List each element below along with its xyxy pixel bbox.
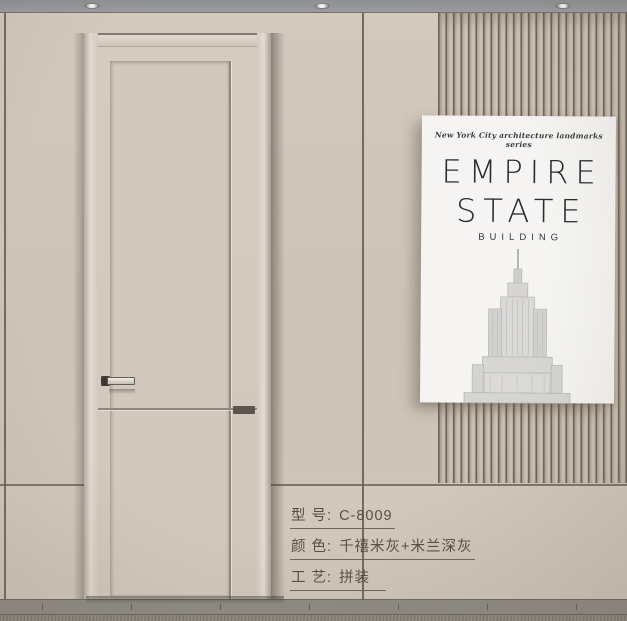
door-frame-jamb-right <box>257 33 271 600</box>
wall-seam-left <box>4 13 6 599</box>
door-frame-jamb-left <box>84 33 98 600</box>
door-frame-shadow-left <box>73 33 84 600</box>
product-spec-block: 型 号:C-8009 颜 色:千禧米灰+米兰深灰 工 艺:拼装 <box>290 504 510 597</box>
spec-row-craft: 工 艺:拼装 <box>290 566 510 591</box>
door-frame-lintel <box>84 33 271 47</box>
poster-title-line1: EMPIRE <box>422 156 616 188</box>
door-recessed-panel <box>110 61 229 596</box>
floor-texture <box>0 604 627 610</box>
spec-value-craft: 拼装 <box>339 570 370 586</box>
door-handle <box>107 377 135 385</box>
spec-value-color: 千禧米灰+米兰深灰 <box>339 539 472 555</box>
recessed-light-icon <box>555 3 571 9</box>
door-floor-shadow <box>86 596 284 604</box>
spec-value-model: C-8009 <box>339 508 393 524</box>
empire-state-building-icon <box>452 247 583 420</box>
empire-state-poster: New York City architecture landmarks ser… <box>420 115 616 403</box>
poster-subtitle: BUILDING <box>421 231 615 243</box>
recessed-light-icon <box>84 3 100 9</box>
door-handle-shadow <box>109 389 135 394</box>
poster-series-text: New York City architecture landmarks ser… <box>422 130 616 149</box>
spec-row-model: 型 号:C-8009 <box>290 504 510 529</box>
carpet-strip <box>0 614 627 621</box>
spec-label-craft: 工 艺: <box>291 570 332 586</box>
poster-title-line2: STATE <box>421 195 615 227</box>
spec-row-color: 颜 色:千禧米灰+米兰深灰 <box>290 535 510 560</box>
door-frame-shadow-right <box>271 33 285 600</box>
door-dark-accent-strip <box>233 406 255 414</box>
recessed-light-icon <box>314 3 330 9</box>
door-leaf <box>98 47 257 600</box>
showroom-scene: New York City architecture landmarks ser… <box>0 0 627 621</box>
door-vertical-groove <box>229 61 231 600</box>
spec-label-model: 型 号: <box>291 508 332 524</box>
spec-label-color: 颜 色: <box>291 539 332 555</box>
